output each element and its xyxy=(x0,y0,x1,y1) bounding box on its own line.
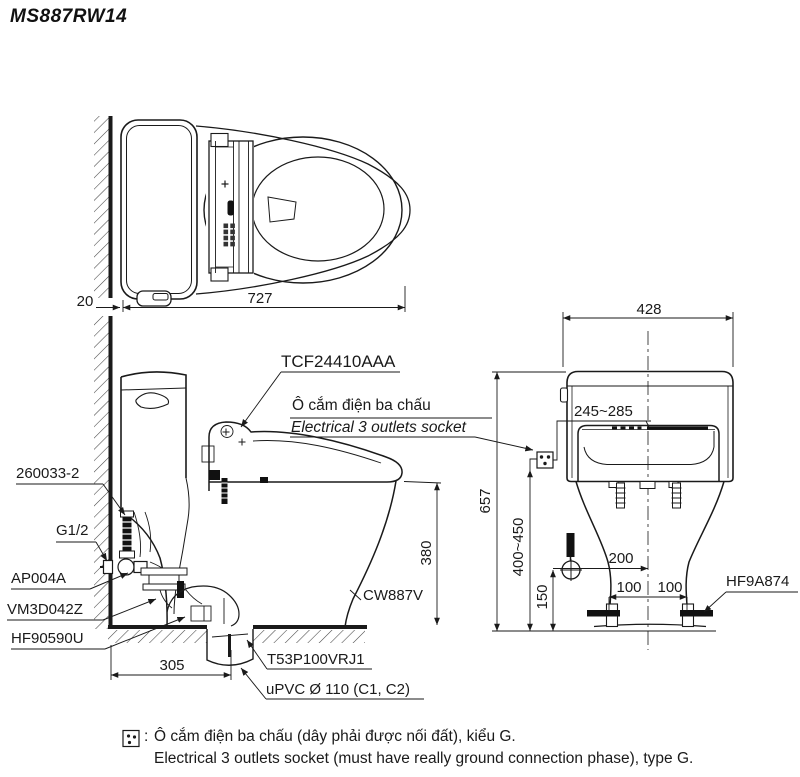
label-vm3d042z: VM3D042Z xyxy=(7,602,83,618)
label-hf9a874: HF9A874 xyxy=(726,574,789,590)
tank-top xyxy=(121,120,197,299)
technical-drawing-page: MS887RW14 20 727 TCF24410AAA Ô cắm điện … xyxy=(0,0,800,777)
supply-valve-front xyxy=(560,533,582,581)
tank-side-button xyxy=(561,388,568,402)
dim-total-height: 657 xyxy=(478,488,494,513)
supply-rod xyxy=(120,511,135,558)
dim-trap-set: 305 xyxy=(159,658,184,674)
wall-hatch-top xyxy=(94,116,110,298)
drawing-title: MS887RW14 xyxy=(10,6,127,28)
dim-seat-height: 380 xyxy=(419,540,435,565)
note-english: Electrical 3 outlets socket (must have r… xyxy=(154,751,693,767)
dim-socket-range: 245~285 xyxy=(574,404,633,420)
water-spot xyxy=(268,197,296,222)
label-cw887v: CW887V xyxy=(363,588,423,604)
label-socket-vi: Ô cắm điện ba chấu xyxy=(292,398,431,414)
note-vietnamese: Ô cắm điện ba chấu (dây phải được nối đấ… xyxy=(154,729,516,745)
dim-width: 428 xyxy=(636,302,661,318)
flush-handle xyxy=(136,393,169,409)
drawing-linework xyxy=(0,0,800,777)
dim-top-gap: 20 xyxy=(77,294,94,310)
top-view xyxy=(94,116,410,312)
label-socket-en: Electrical 3 outlets socket xyxy=(291,420,466,436)
seat-bolt xyxy=(222,478,228,504)
pedestal-left xyxy=(576,482,611,606)
socket-symbol xyxy=(537,452,553,468)
label-tcf24410aaa: TCF24410AAA xyxy=(281,353,395,371)
label-upvc: uPVC Ø 110 (C1, C2) xyxy=(266,682,410,698)
label-g1-2: G1/2 xyxy=(56,523,89,539)
dim-socket-height: 400~450 xyxy=(511,518,527,577)
dim-bolt-right: 100 xyxy=(657,580,682,596)
seat-front xyxy=(578,426,719,482)
note-colon: : xyxy=(144,729,148,745)
dim-supply-offset: 200 xyxy=(608,551,633,567)
label-260033-2: 260033-2 xyxy=(16,466,79,482)
bolt-cap-right xyxy=(680,610,713,617)
bowl-inner-top xyxy=(252,157,384,261)
side-view xyxy=(7,316,533,699)
label-hf90590u: HF90590U xyxy=(11,631,84,647)
dim-bolt-left: 100 xyxy=(616,580,641,596)
label-t53p100vrj1: T53P100VRJ1 xyxy=(267,652,365,668)
bolt-cap-left xyxy=(587,610,620,617)
bowl-front-curve xyxy=(345,481,396,627)
label-ap004a: AP004A xyxy=(11,571,66,587)
panel-button xyxy=(228,201,235,216)
dim-supply-height: 150 xyxy=(535,584,551,609)
dim-top-length: 727 xyxy=(247,291,272,307)
stop-valve xyxy=(100,559,147,575)
pedestal-right xyxy=(686,482,724,606)
note-socket-icon xyxy=(123,731,139,747)
